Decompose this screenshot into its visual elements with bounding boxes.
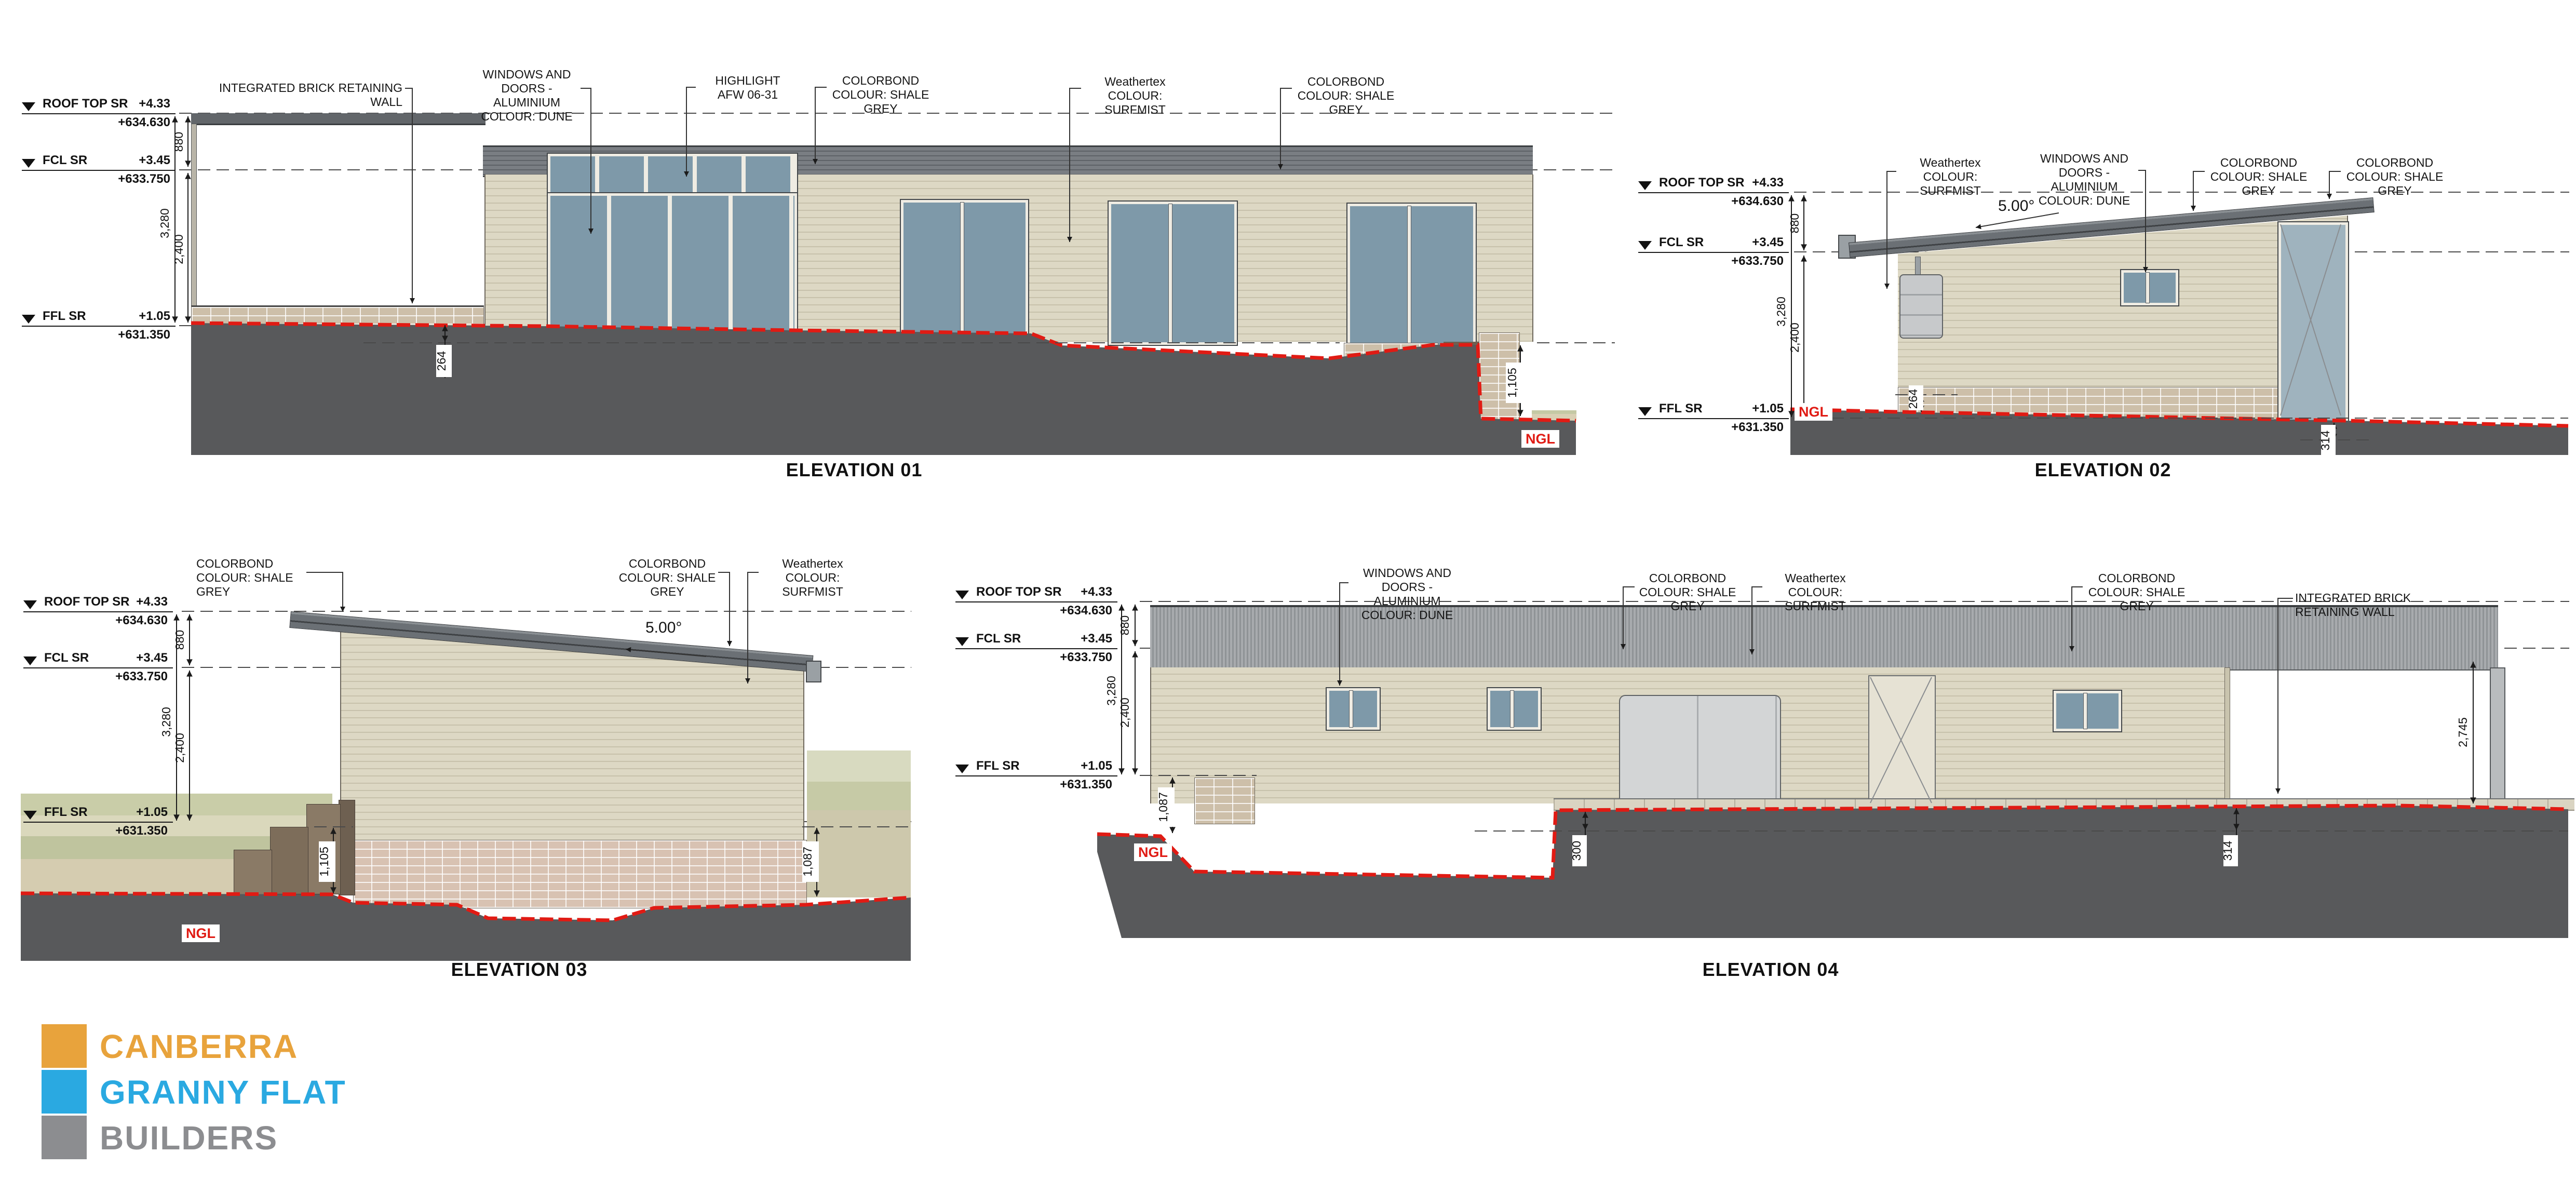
e03-dim-overall: 3,280 (159, 707, 173, 737)
e01-garden-strip (1532, 410, 1576, 414)
e01-dim-overall: 3,280 (158, 208, 171, 238)
e01-callout-weathertex: WeathertexCOLOUR: SURFMIST (1083, 75, 1187, 117)
e04-dim-bay: 2,745 (2456, 717, 2470, 747)
e04-dim-right: 314 (2221, 841, 2234, 861)
level-rl: +1.05 (1752, 401, 1784, 416)
level-triangle-icon (22, 159, 35, 168)
e01-line-roof (22, 113, 176, 114)
e04-dim-mid: 300 (1570, 841, 1583, 861)
e04-pier-3 (1967, 813, 1987, 862)
e01-line-ffl (22, 326, 176, 327)
e04-line-fcl (955, 648, 1117, 649)
e01-entry-doors (548, 193, 797, 341)
e04-window-c (2054, 691, 2121, 731)
e04-callout-colorbond-1: COLORBONDCOLOUR: SHALE GREY (1636, 571, 1739, 613)
e02-line-fcl (1638, 252, 1789, 253)
level-rl: +3.45 (1081, 632, 1112, 646)
level-triangle-icon (1638, 407, 1652, 416)
e03-garden-right-3 (807, 810, 911, 897)
e04-window-a (1327, 688, 1380, 730)
e02-window-mullion (2146, 273, 2149, 303)
e02-callout-colorbond-1: COLORBONDCOLOUR: SHALE GREY (2207, 156, 2311, 198)
e02-callout-weathertex: WeathertexCOLOUR: SURFMIST (1898, 156, 2002, 198)
e04-wall-corner-trim (2224, 667, 2230, 802)
e01-sliding-door-3 (1109, 202, 1237, 345)
level-label: ROOF TOP SR (43, 97, 128, 111)
e01-carport-post (191, 124, 197, 307)
e01-level-fcl: FCL SR+3.45 (22, 153, 170, 168)
level-label: FCL SR (1659, 235, 1704, 250)
e03-gutter (806, 661, 821, 682)
e04-ground (1097, 806, 2568, 938)
e04-pier-1 (1272, 877, 1292, 930)
e04-title: ELEVATION 04 (1651, 959, 1890, 981)
e01-datum-ffl: +631.350 (22, 328, 170, 342)
e04-dim-ceiling: 2,400 (1118, 698, 1131, 728)
level-label: ROOF TOP SR (976, 585, 1061, 599)
level-rl: +4.33 (136, 595, 168, 609)
level-rl: +1.05 (139, 309, 170, 324)
e01-brick-under-door (1344, 343, 1438, 358)
e04-dim-overall: 3,280 (1104, 676, 1118, 706)
level-triangle-icon (955, 591, 969, 599)
e02-dim-ceiling: 2,400 (1788, 323, 1801, 353)
level-label: FFL SR (43, 309, 86, 324)
e01-line-fcl (22, 170, 176, 171)
e04-line-ffl (955, 775, 1117, 776)
e01-ngl-label: NGL (1521, 430, 1559, 448)
drawing-sheet: { "levels": [ {"label": "ROOF TOP SR", "… (0, 0, 2576, 1193)
e04-brick-left (1194, 778, 1255, 824)
e03-callout-weathertex: WeathertexCOLOUR: SURFMIST (761, 557, 865, 599)
e04-water-tank (1619, 695, 1781, 804)
e04-datum-fcl: +633.750 (955, 650, 1112, 665)
e03-pitch-note: 5.00° (645, 619, 682, 637)
e04-end-post (2490, 667, 2505, 809)
e01-earth-cut (1444, 342, 1479, 385)
level-rl: +4.33 (1752, 176, 1784, 190)
level-triangle-icon (1638, 181, 1652, 190)
e04-callout-windows: WINDOWS ANDDOORS - ALUMINIUMCOLOUR: DUNE (1350, 566, 1464, 622)
level-triangle-icon (23, 600, 37, 609)
e03-garden-right-1 (807, 750, 911, 782)
e03-line-roof (23, 611, 173, 612)
e04-window-a-mullion (1350, 691, 1353, 727)
e01-callout-retaining-wall: INTEGRATED BRICK RETAINING WALL (215, 81, 402, 109)
e04-callout-retaining-wall: INTEGRATED BRICK RETAINING WALL (2295, 591, 2472, 619)
e01-callout-highlight: HIGHLIGHTAFW 06-31 (698, 74, 797, 102)
e03-datum-roof: +634.630 (23, 613, 168, 628)
level-label: FCL SR (43, 153, 87, 168)
level-rl: +3.45 (136, 651, 168, 665)
e02-ngl-label: NGL (1795, 403, 1832, 421)
e02-pitch-note: 5.00° (1998, 197, 2034, 215)
e02-dim-overall: 3,280 (1774, 297, 1788, 327)
e02-level-ffl: FFL SR+1.05 (1638, 401, 1784, 416)
e04-pier-2 (1649, 880, 1668, 931)
e04-datum-ffl: +631.350 (955, 778, 1112, 792)
logo-blue-square (42, 1070, 87, 1114)
e01-carport-roof (191, 113, 485, 125)
e04-line-roof (955, 601, 1117, 602)
level-label: FCL SR (44, 651, 89, 665)
e03-dim-ceiling: 2,400 (173, 733, 186, 763)
e03-callout-colorbond-1: COLORBONDCOLOUR: SHALE GREY (196, 557, 311, 599)
level-triangle-icon (1638, 241, 1652, 250)
level-triangle-icon (23, 656, 37, 665)
e01-retaining-wall (191, 305, 484, 327)
e04-door (1868, 675, 1936, 807)
e01-brick-pier (1479, 332, 1520, 420)
e02-datum-fcl: +633.750 (1638, 254, 1784, 269)
e04-window-b (1488, 688, 1541, 730)
e02-line-roof (1638, 192, 1789, 193)
e03-ngl-label: NGL (182, 924, 220, 942)
e01-door4-mullion (1408, 206, 1411, 345)
e01-sliding-door-4 (1347, 204, 1476, 348)
level-rl: +1.05 (136, 805, 168, 820)
e04-level-roof: ROOF TOP SR+4.33 (955, 585, 1112, 599)
e03-callout-colorbond-2: COLORBONDCOLOUR: SHALE GREY (615, 557, 719, 599)
e04-callout-weathertex: WeathertexCOLOUR: SURFMIST (1763, 571, 1867, 613)
e01-highlight-windows (548, 154, 797, 198)
e02-level-roof: ROOF TOP SR+4.33 (1638, 176, 1784, 190)
e03-level-fcl: FCL SR+3.45 (23, 651, 168, 665)
logo-orange-square (42, 1024, 87, 1068)
e04-level-fcl: FCL SR+3.45 (955, 632, 1112, 646)
e04-window-c-mullion (2084, 693, 2087, 729)
e01-soil-strip (1532, 414, 1576, 421)
e01-level-roof: ROOF TOP SR+4.33 (22, 97, 170, 111)
e03-step-face (339, 800, 355, 895)
e03-datum-ffl: +631.350 (23, 824, 168, 838)
e03-line-ffl (23, 822, 173, 823)
e02-window (2121, 270, 2178, 305)
e02-datum-roof: +634.630 (1638, 194, 1784, 209)
e02-dim-roofzone: 880 (1788, 213, 1801, 233)
e01-sliding-door-2 (901, 200, 1028, 341)
e03-garden-right-2 (807, 782, 911, 810)
e01-callout-colorbond-1: COLORBONDCOLOUR: SHALE GREY (829, 74, 933, 116)
e03-brick-base (353, 840, 807, 908)
level-triangle-icon (22, 315, 35, 324)
level-triangle-icon (22, 102, 35, 111)
level-triangle-icon (23, 811, 37, 820)
e01-dim-ceiling: 2,400 (172, 234, 185, 264)
level-triangle-icon (955, 765, 969, 773)
e04-paving (1554, 798, 2574, 811)
level-rl: +4.33 (1081, 585, 1112, 599)
e01-level-ffl: FFL SR+1.05 (22, 309, 170, 324)
e03-datum-fcl: +633.750 (23, 669, 168, 684)
level-rl: +4.33 (139, 97, 170, 111)
e04-callout-colorbond-2: COLORBONDCOLOUR: SHALE GREY (2085, 571, 2189, 613)
e02-line-ffl (1638, 418, 1789, 419)
e01-door3-mullion (1169, 204, 1172, 342)
e03-level-roof: ROOF TOP SR+4.33 (23, 595, 168, 609)
e03-line-fcl (23, 667, 173, 668)
e02-glazed-door (2278, 222, 2348, 424)
e01-dim-roofzone: 880 (172, 132, 185, 152)
level-label: FCL SR (976, 632, 1021, 646)
e02-dim-ground-right: 314 (2318, 431, 2332, 451)
level-label: FFL SR (1659, 401, 1703, 416)
e01-datum-roof: +634.630 (22, 115, 170, 130)
e03-step-2 (270, 827, 308, 894)
e04-ngl-label: NGL (1134, 843, 1172, 861)
e02-callout-windows: WINDOWS ANDDOORS - ALUMINIUMCOLOUR: DUNE (2030, 152, 2138, 208)
level-label: ROOF TOP SR (1659, 176, 1744, 190)
e01-callout-windows: WINDOWS ANDDOORS - ALUMINIUMCOLOUR: DUNE (474, 68, 580, 124)
level-label: FFL SR (976, 759, 1020, 773)
e04-dim-roofzone: 880 (1118, 615, 1131, 635)
e02-water-tank (1899, 274, 1943, 339)
e03-title: ELEVATION 03 (400, 959, 639, 981)
e01-title: ELEVATION 01 (735, 459, 974, 481)
e02-datum-ffl: +631.350 (1638, 420, 1784, 435)
e02-level-fcl: FCL SR+3.45 (1638, 235, 1784, 250)
logo-word-granny-flat: GRANNY FLAT (100, 1073, 346, 1111)
level-label: FFL SR (44, 805, 88, 820)
e01-door2-mullion (961, 203, 964, 339)
e02-title: ELEVATION 02 (1984, 459, 2222, 481)
e01-callout-colorbond-2: COLORBONDCOLOUR: SHALE GREY (1294, 75, 1398, 117)
e03-dim-roofzone: 880 (173, 630, 186, 650)
logo-word-canberra: CANBERRA (100, 1027, 298, 1066)
e02-downpipe (1915, 257, 1921, 276)
level-rl: +3.45 (139, 153, 170, 168)
level-rl: +1.05 (1081, 759, 1112, 773)
logo-word-builders: BUILDERS (100, 1119, 278, 1157)
e01-datum-fcl: +633.750 (22, 172, 170, 186)
e03-step-3 (234, 850, 272, 895)
e04-level-ffl: FFL SR+1.05 (955, 759, 1112, 773)
e01-dim-ground: 264 (435, 351, 448, 371)
level-triangle-icon (955, 637, 969, 646)
e02-callout-colorbond-2: COLORBONDCOLOUR: SHALE GREY (2343, 156, 2447, 198)
e03-step-1 (306, 804, 341, 894)
logo-grey-square (42, 1116, 87, 1159)
e04-window-b-mullion (1510, 691, 1514, 727)
level-label: ROOF TOP SR (44, 595, 129, 609)
e04-datum-roof: +634.630 (955, 604, 1112, 618)
e03-level-ffl: FFL SR+1.05 (23, 805, 168, 820)
level-rl: +3.45 (1752, 235, 1784, 250)
